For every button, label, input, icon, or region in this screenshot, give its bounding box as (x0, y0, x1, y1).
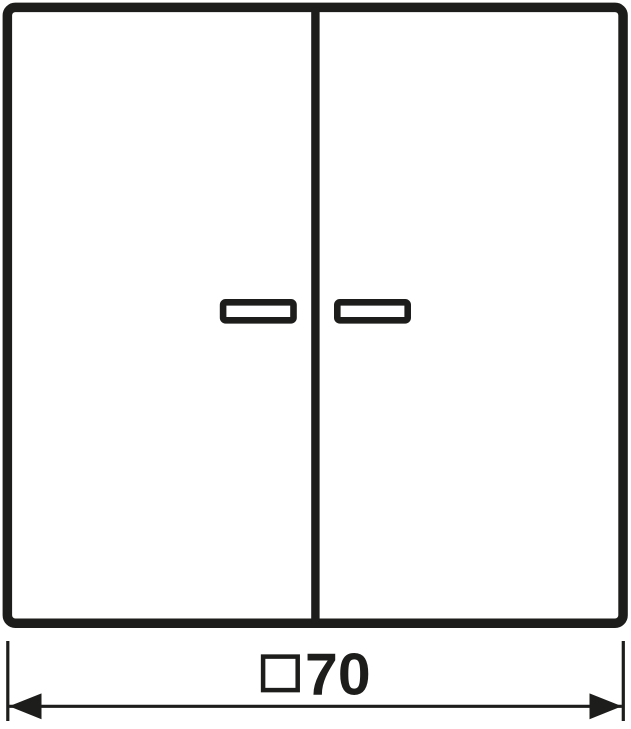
svg-text:70: 70 (305, 641, 371, 707)
